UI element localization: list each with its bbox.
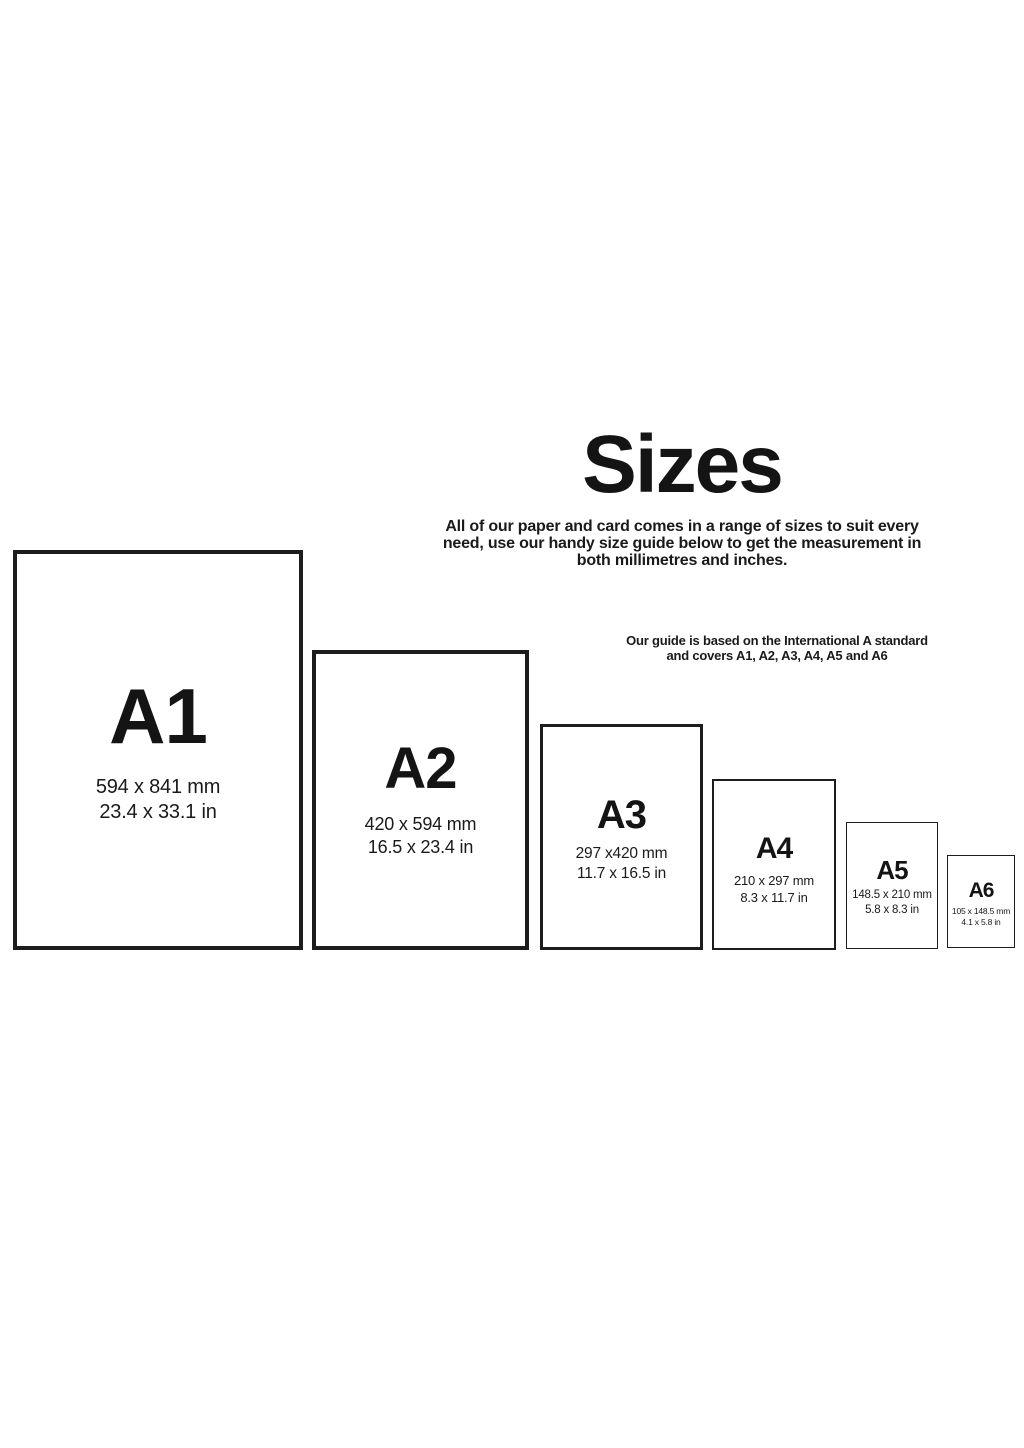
paper-label-a3: A3 <box>597 796 646 834</box>
paper-box-a4: A4 210 x 297 mm 8.3 x 11.7 in <box>712 779 836 950</box>
paper-mm-a3: 297 x420 mm <box>576 844 668 864</box>
paper-box-a5: A5 148.5 x 210 mm 5.8 x 8.3 in <box>846 822 938 949</box>
paper-dimensions-a4: 210 x 297 mm 8.3 x 11.7 in <box>734 872 814 906</box>
paper-mm-a1: 594 x 841 mm <box>96 775 220 800</box>
paper-label-a4: A4 <box>756 835 792 864</box>
paper-box-a3: A3 297 x420 mm 11.7 x 16.5 in <box>540 724 703 950</box>
paper-label-a1: A1 <box>109 679 207 753</box>
paper-box-a2: A2 420 x 594 mm 16.5 x 23.4 in <box>312 650 529 950</box>
page-title: Sizes <box>340 424 1024 506</box>
paper-dimensions-a2: 420 x 594 mm 16.5 x 23.4 in <box>365 813 477 859</box>
paper-mm-a2: 420 x 594 mm <box>365 813 477 836</box>
paper-mm-a5: 148.5 x 210 mm <box>852 888 932 903</box>
page-subtitle: All of our paper and card comes in a ran… <box>340 518 1024 569</box>
paper-mm-a6: 105 x 148.5 mm <box>952 906 1010 917</box>
paper-box-a1: A1 594 x 841 mm 23.4 x 33.1 in <box>13 550 303 950</box>
paper-inches-a6: 4.1 x 5.8 in <box>952 917 1010 928</box>
paper-label-a5: A5 <box>876 858 907 883</box>
paper-inches-a5: 5.8 x 8.3 in <box>852 903 932 918</box>
paper-dimensions-a6: 105 x 148.5 mm 4.1 x 5.8 in <box>952 906 1010 928</box>
paper-dimensions-a5: 148.5 x 210 mm 5.8 x 8.3 in <box>852 888 932 918</box>
paper-inches-a2: 16.5 x 23.4 in <box>365 836 477 859</box>
header: Sizes All of our paper and card comes in… <box>340 424 1024 569</box>
paper-dimensions-a3: 297 x420 mm 11.7 x 16.5 in <box>576 844 668 884</box>
paper-mm-a4: 210 x 297 mm <box>734 872 814 889</box>
paper-dimensions-a1: 594 x 841 mm 23.4 x 33.1 in <box>96 775 220 825</box>
paper-box-a6: A6 105 x 148.5 mm 4.1 x 5.8 in <box>947 855 1015 948</box>
paper-inches-a4: 8.3 x 11.7 in <box>734 889 814 906</box>
paper-label-a6: A6 <box>969 881 994 901</box>
paper-inches-a3: 11.7 x 16.5 in <box>576 864 668 884</box>
paper-inches-a1: 23.4 x 33.1 in <box>96 800 220 825</box>
standard-note: Our guide is based on the International … <box>620 633 934 663</box>
paper-label-a2: A2 <box>384 741 456 796</box>
